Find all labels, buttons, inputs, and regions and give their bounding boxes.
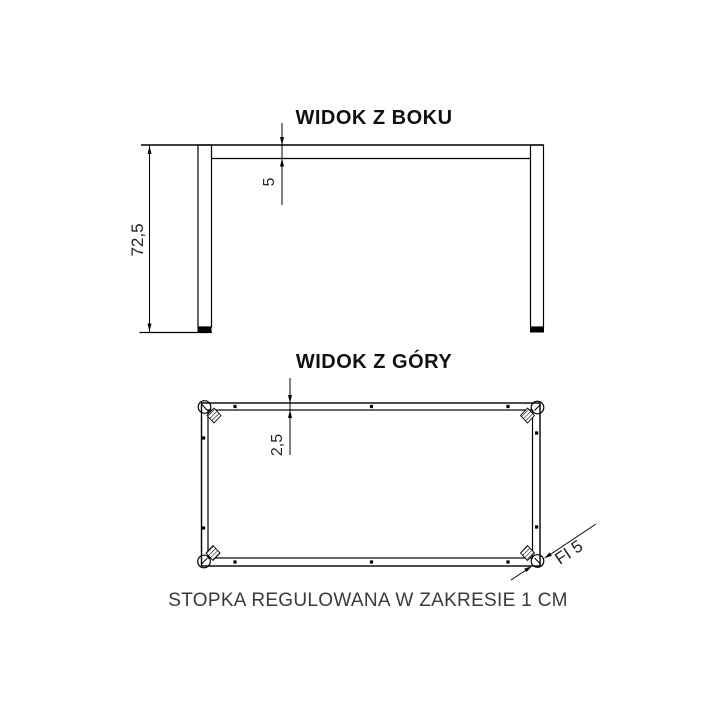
screw-mark bbox=[233, 560, 236, 563]
depth-dim-arrow-top bbox=[288, 395, 292, 403]
height-dim-arrow-top bbox=[148, 146, 152, 154]
depth-dimension-label: 2,5 bbox=[269, 434, 286, 456]
screw-mark bbox=[506, 405, 509, 408]
screw-mark bbox=[202, 526, 205, 529]
rail-dimension-label: 5 bbox=[261, 177, 278, 186]
rail-dim-arrow-bottom bbox=[280, 159, 284, 167]
height-dimension-label: 72,5 bbox=[128, 223, 147, 256]
frame-outer-outline bbox=[202, 403, 541, 566]
screw-mark bbox=[202, 436, 205, 439]
screw-mark bbox=[506, 560, 509, 563]
screw-mark bbox=[370, 560, 373, 563]
right-leg bbox=[531, 145, 544, 327]
right-foot bbox=[530, 327, 544, 333]
screw-mark bbox=[535, 525, 538, 528]
table-frame-drawing: WIDOK Z BOKU 72,5 5 bbox=[0, 0, 720, 720]
left-leg bbox=[198, 145, 212, 327]
side-view: WIDOK Z BOKU 72,5 5 bbox=[128, 107, 544, 333]
foot-slot-top-left bbox=[202, 404, 208, 411]
screw-mark bbox=[233, 405, 236, 408]
top-view-title: WIDOK Z GÓRY bbox=[296, 349, 453, 373]
height-dim-arrow-bottom bbox=[148, 324, 152, 332]
foot-diameter-arrow-lower bbox=[524, 566, 532, 572]
depth-dim-arrow-bottom bbox=[288, 410, 292, 418]
rail-dim-arrow-top bbox=[280, 137, 284, 145]
caption-adjustable-foot: STOPKA REGULOWANA W ZAKRESIE 1 CM bbox=[168, 590, 567, 611]
side-view-title: WIDOK Z BOKU bbox=[295, 107, 452, 129]
frame-inner-outline bbox=[208, 410, 533, 558]
foot-diameter-arrow-upper bbox=[544, 552, 552, 558]
foot-diameter-label: FI 5 bbox=[551, 536, 586, 568]
technical-drawing-page: WIDOK Z BOKU 72,5 5 bbox=[0, 0, 720, 720]
screw-mark bbox=[535, 431, 538, 434]
screw-mark bbox=[370, 405, 373, 408]
left-foot bbox=[198, 327, 212, 333]
top-view: WIDOK Z GÓRY bbox=[198, 349, 596, 580]
